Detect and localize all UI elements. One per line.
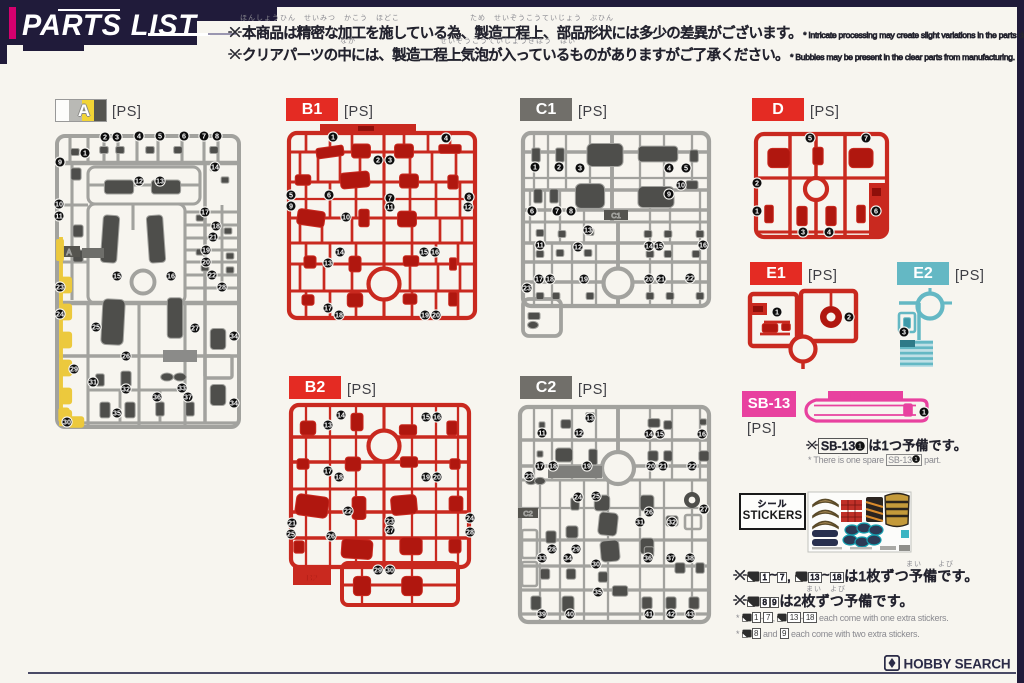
svg-text:32: 32 [122,385,130,394]
svg-text:7: 7 [555,207,559,216]
svg-text:17: 17 [536,462,544,471]
svg-text:41: 41 [645,610,653,619]
svg-text:4: 4 [827,228,831,237]
svg-text:30: 30 [592,560,600,569]
svg-text:7: 7 [202,132,206,141]
svg-text:16: 16 [433,413,441,422]
svg-text:14: 14 [336,248,344,257]
svg-text:32: 32 [668,518,676,527]
svg-text:42: 42 [667,610,675,619]
svg-text:18: 18 [335,473,343,482]
svg-text:6: 6 [182,132,186,141]
svg-text:11: 11 [538,429,546,438]
svg-text:4: 4 [444,134,448,143]
svg-text:9: 9 [289,202,293,211]
svg-text:16: 16 [698,430,706,439]
svg-text:34: 34 [564,554,572,563]
svg-text:37: 37 [184,393,192,402]
svg-text:36: 36 [153,393,161,402]
svg-text:43: 43 [686,610,694,619]
svg-text:10: 10 [342,213,350,222]
svg-text:21: 21 [659,462,667,471]
svg-text:3: 3 [115,133,119,142]
svg-text:4: 4 [667,164,671,173]
svg-text:10: 10 [55,200,63,209]
svg-text:9: 9 [58,158,62,167]
svg-text:15: 15 [655,242,663,251]
svg-text:19: 19 [422,473,430,482]
svg-text:29: 29 [572,545,580,554]
svg-text:31: 31 [89,378,97,387]
svg-text:24: 24 [466,514,474,523]
svg-text:2: 2 [376,156,380,165]
svg-text:1: 1 [775,308,779,317]
svg-text:19: 19 [202,246,210,255]
svg-text:16: 16 [699,241,707,250]
svg-text:18: 18 [212,222,220,231]
svg-text:21: 21 [288,519,296,528]
svg-text:11: 11 [536,241,544,250]
svg-text:9: 9 [667,190,671,199]
svg-text:19: 19 [421,311,429,320]
svg-text:11: 11 [386,203,394,212]
svg-text:18: 18 [335,311,343,320]
svg-text:37: 37 [667,554,675,563]
svg-text:15: 15 [422,413,430,422]
svg-text:6: 6 [327,191,331,200]
svg-text:6: 6 [530,207,534,216]
svg-text:4: 4 [137,132,141,141]
svg-text:22: 22 [686,274,694,283]
svg-text:13: 13 [324,421,332,430]
svg-text:2: 2 [755,179,759,188]
svg-text:28: 28 [218,283,226,292]
svg-text:A: A [66,248,72,257]
svg-text:5: 5 [808,134,812,143]
svg-text:22: 22 [344,507,352,516]
svg-text:29: 29 [70,365,78,374]
svg-text:21: 21 [209,233,217,242]
svg-text:12: 12 [574,243,582,252]
svg-text:10: 10 [677,181,685,190]
svg-text:33: 33 [178,384,186,393]
svg-text:1: 1 [331,133,335,142]
svg-text:15: 15 [420,248,428,257]
svg-text:30: 30 [63,418,71,427]
svg-text:22: 22 [208,271,216,280]
svg-text:14: 14 [211,163,219,172]
svg-text:8: 8 [215,132,219,141]
svg-text:24: 24 [56,310,64,319]
svg-text:20: 20 [645,275,653,284]
svg-text:13: 13 [586,414,594,423]
svg-text:26: 26 [645,508,653,517]
svg-text:1: 1 [533,163,537,172]
svg-text:20: 20 [202,258,210,267]
svg-text:13: 13 [156,177,164,186]
svg-text:40: 40 [566,610,574,619]
svg-text:16: 16 [167,272,175,281]
svg-text:13: 13 [324,259,332,268]
svg-text:28: 28 [466,528,474,537]
svg-text:13: 13 [584,226,592,235]
svg-text:26: 26 [122,352,130,361]
svg-text:17: 17 [535,275,543,284]
svg-text:17: 17 [201,208,209,217]
svg-text:16: 16 [431,248,439,257]
svg-text:24: 24 [574,493,582,502]
svg-text:20: 20 [432,311,440,320]
svg-text:30: 30 [386,566,394,575]
svg-text:11: 11 [55,212,63,221]
svg-text:3: 3 [388,156,392,165]
svg-text:31: 31 [636,518,644,527]
svg-text:C1: C1 [611,211,621,220]
svg-text:19: 19 [583,462,591,471]
svg-text:14: 14 [645,430,653,439]
svg-text:27: 27 [191,324,199,333]
svg-text:6: 6 [874,207,878,216]
svg-text:35: 35 [594,588,602,597]
svg-text:15: 15 [656,430,664,439]
svg-text:5: 5 [158,132,162,141]
svg-text:1: 1 [83,149,87,158]
svg-text:23: 23 [525,472,533,481]
svg-text:7: 7 [388,194,392,203]
svg-text:27: 27 [386,526,394,535]
svg-text:15: 15 [113,272,121,281]
svg-text:18: 18 [549,462,557,471]
svg-text:19: 19 [580,275,588,284]
svg-text:34: 34 [230,399,238,408]
svg-text:12: 12 [464,203,472,212]
svg-text:18: 18 [546,275,554,284]
svg-text:3: 3 [578,164,582,173]
svg-text:17: 17 [324,467,332,476]
svg-text:14: 14 [645,242,653,251]
svg-text:28: 28 [548,545,556,554]
svg-text:B2: B2 [306,573,318,583]
svg-text:2: 2 [847,313,851,322]
svg-text:34: 34 [230,332,238,341]
svg-text:3: 3 [801,228,805,237]
svg-text:22: 22 [688,462,696,471]
svg-text:2: 2 [103,133,107,142]
svg-text:20: 20 [647,462,655,471]
svg-text:20: 20 [433,473,441,482]
svg-text:5: 5 [289,191,293,200]
svg-text:27: 27 [700,505,708,514]
svg-text:35: 35 [113,409,121,418]
svg-text:23: 23 [386,517,394,526]
svg-text:7: 7 [864,134,868,143]
svg-text:25: 25 [592,492,600,501]
svg-text:23: 23 [523,284,531,293]
svg-text:33: 33 [538,554,546,563]
svg-text:C2: C2 [523,509,533,518]
svg-text:26: 26 [327,532,335,541]
svg-text:2: 2 [557,163,561,172]
svg-text:3: 3 [902,328,906,337]
svg-text:29: 29 [374,566,382,575]
svg-text:1: 1 [755,207,759,216]
svg-text:21: 21 [657,275,665,284]
svg-text:14: 14 [337,411,345,420]
svg-text:36: 36 [644,554,652,563]
svg-text:39: 39 [538,610,546,619]
svg-text:12: 12 [135,177,143,186]
svg-text:23: 23 [56,283,64,292]
svg-text:8: 8 [467,193,471,202]
svg-text:38: 38 [686,554,694,563]
svg-text:12: 12 [575,429,583,438]
svg-text:17: 17 [324,304,332,313]
svg-text:25: 25 [287,530,295,539]
svg-text:8: 8 [569,207,573,216]
svg-text:5: 5 [684,164,688,173]
svg-text:25: 25 [92,323,100,332]
svg-text:1: 1 [922,408,926,417]
